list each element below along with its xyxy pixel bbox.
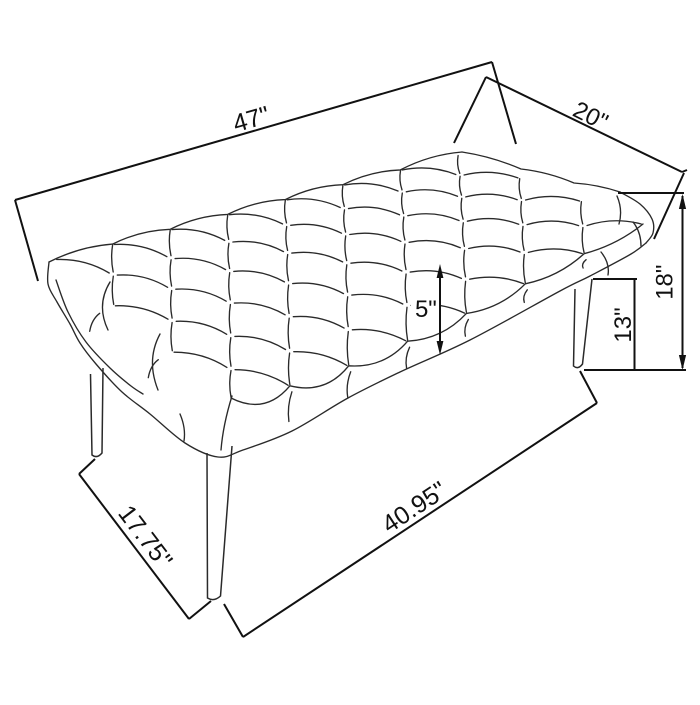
svg-text:5": 5" (415, 296, 437, 323)
svg-text:18": 18" (652, 265, 679, 300)
svg-text:13": 13" (610, 307, 637, 342)
